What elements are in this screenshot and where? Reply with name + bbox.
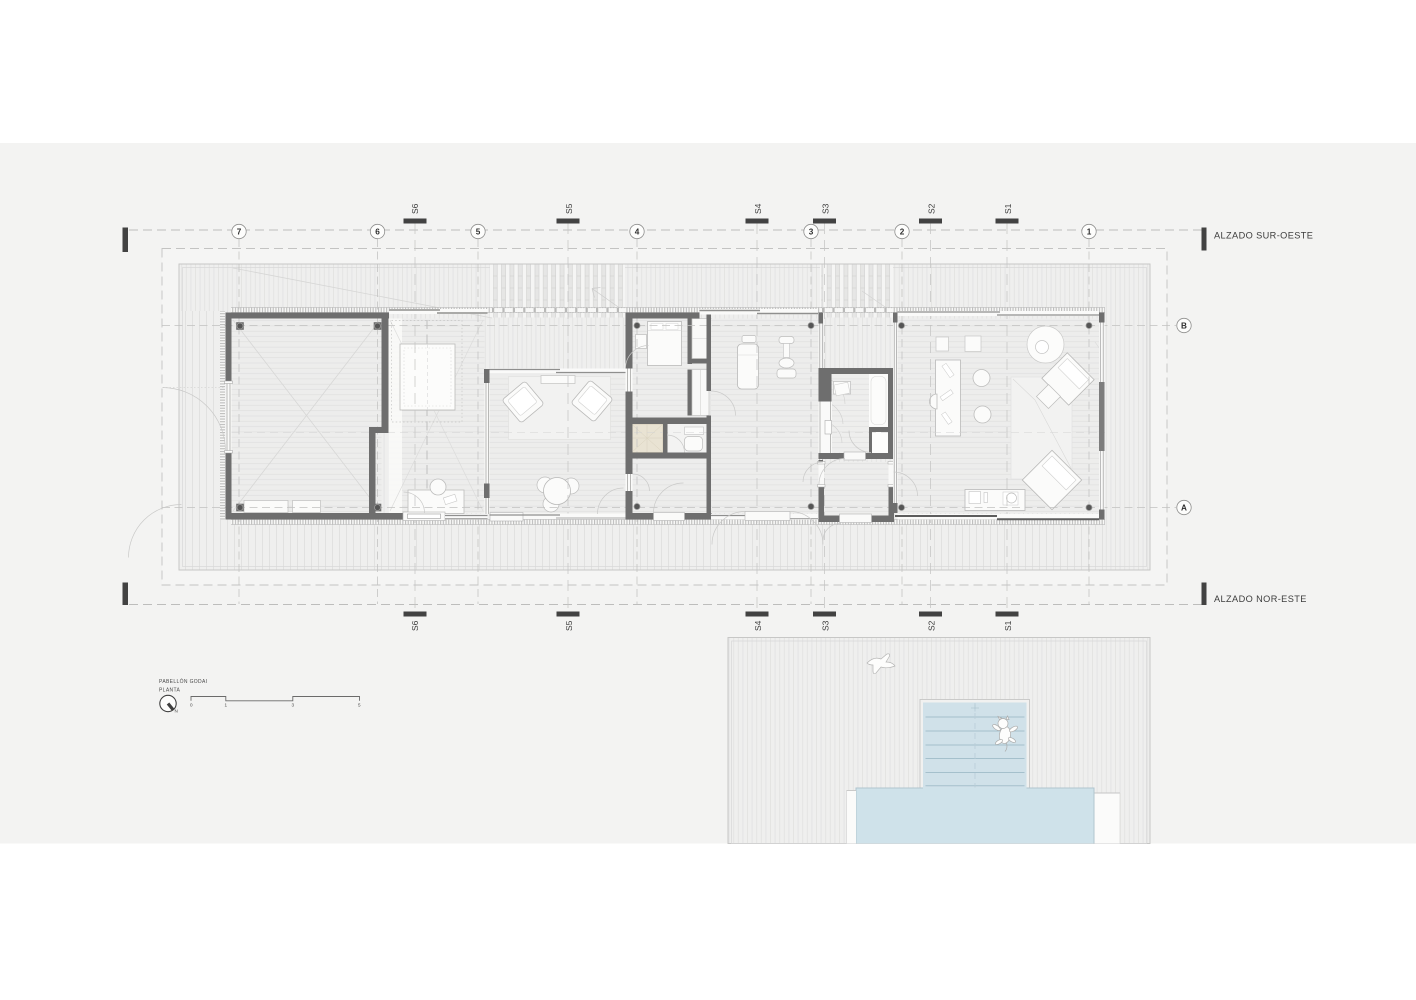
svg-text:1: 1: [225, 703, 228, 708]
svg-text:S1: S1: [1003, 203, 1013, 214]
svg-text:S2: S2: [927, 620, 937, 631]
svg-text:1: 1: [1087, 227, 1092, 236]
svg-text:3: 3: [292, 703, 295, 708]
svg-text:S3: S3: [821, 620, 831, 631]
svg-text:2: 2: [900, 227, 905, 236]
svg-text:S5: S5: [564, 203, 574, 214]
svg-text:A: A: [1181, 503, 1187, 512]
svg-text:0: 0: [190, 703, 193, 708]
svg-text:S6: S6: [410, 620, 420, 631]
svg-text:5: 5: [476, 227, 481, 236]
svg-text:S4: S4: [753, 203, 763, 214]
svg-text:PABELLÓN GODAI: PABELLÓN GODAI: [159, 678, 207, 685]
svg-text:S4: S4: [753, 620, 763, 631]
svg-text:S3: S3: [821, 203, 831, 214]
svg-text:S6: S6: [410, 203, 420, 214]
svg-text:PLANTA: PLANTA: [159, 688, 180, 694]
svg-text:4: 4: [635, 227, 640, 236]
svg-text:S5: S5: [564, 620, 574, 631]
svg-text:S1: S1: [1003, 620, 1013, 631]
svg-text:6: 6: [375, 227, 380, 236]
svg-text:3: 3: [809, 227, 814, 236]
svg-text:ALZADO SUR-OESTE: ALZADO SUR-OESTE: [1214, 231, 1313, 241]
svg-text:N: N: [175, 709, 178, 714]
svg-text:5: 5: [358, 703, 361, 708]
svg-text:ALZADO NOR-ESTE: ALZADO NOR-ESTE: [1214, 594, 1307, 604]
svg-text:7: 7: [237, 227, 242, 236]
svg-text:S2: S2: [927, 203, 937, 214]
svg-text:B: B: [1181, 321, 1187, 330]
